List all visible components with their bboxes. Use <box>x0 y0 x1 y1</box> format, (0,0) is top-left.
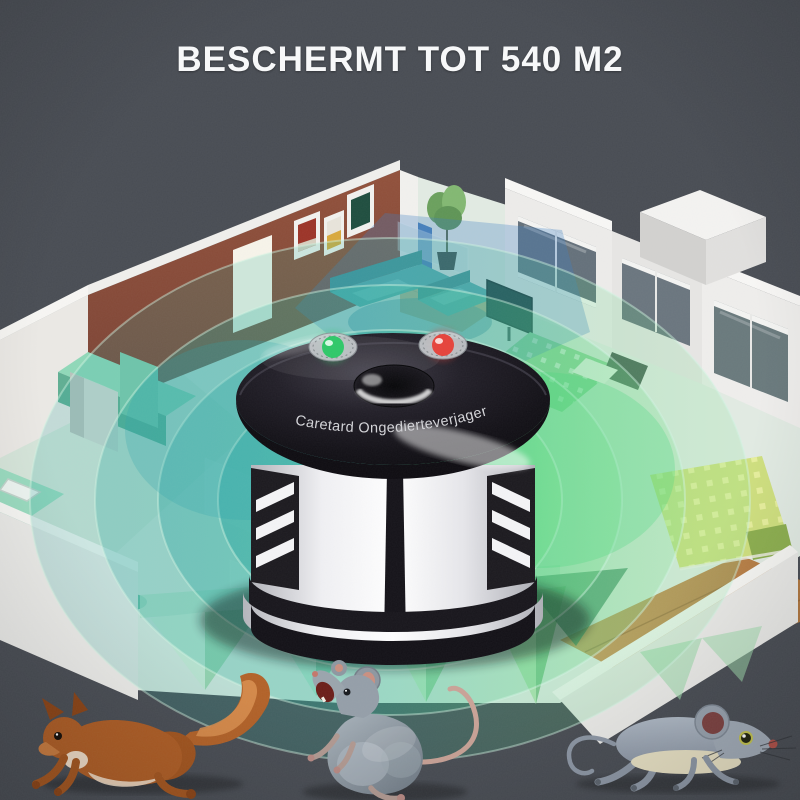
scene-svg: Caretard Ongedierteverjager <box>0 0 800 800</box>
product-image: Caretard Ongedierteverjager <box>0 0 800 800</box>
headline: BESCHERMT TOT 540 M2 <box>0 40 800 80</box>
grain-overlay <box>0 0 800 800</box>
